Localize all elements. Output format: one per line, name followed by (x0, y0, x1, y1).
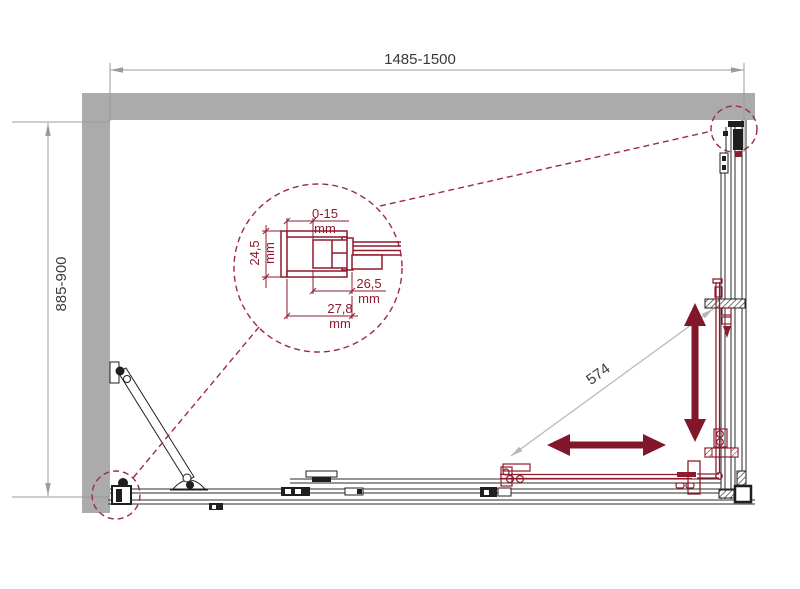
technical-drawing-page: 1485-1500 885-900 574 (0, 0, 800, 589)
width-dimension-label: 1485-1500 (384, 51, 456, 68)
slide-direction-arrows (547, 303, 706, 456)
vertical-slide-arrow (684, 303, 706, 442)
detail-callout (92, 106, 757, 519)
door-roller-middle (480, 464, 530, 497)
inner-width-unit-label: mm (358, 291, 380, 306)
profile-cross-section (281, 231, 401, 277)
sliding-door-red-edges (500, 279, 722, 479)
profile-depth-unit-label: mm (262, 242, 277, 264)
wall-anchor-bracket (112, 478, 131, 504)
gap-value-label: 0-15 (312, 206, 338, 221)
top-wall (82, 93, 755, 120)
horizontal-slide-arrow (547, 434, 666, 456)
drawing-canvas: 1485-1500 885-900 574 (0, 0, 800, 589)
outer-width-unit-label: mm (329, 316, 351, 331)
callout-leader-bottom (133, 327, 259, 478)
diagonal-dimension (511, 309, 713, 456)
inner-width-value-label: 26,5 (356, 276, 381, 291)
left-wall (82, 120, 110, 513)
top-right-corner-bracket (720, 121, 744, 173)
gap-unit-label: mm (314, 221, 336, 236)
callout-leader-top (380, 131, 712, 206)
corner-roller-carriage (676, 429, 738, 494)
outer-width-value-label: 27,8 (327, 301, 352, 316)
depth-dimension-label: 885-900 (53, 256, 70, 311)
profile-depth-value-label: 24,5 (247, 240, 262, 265)
